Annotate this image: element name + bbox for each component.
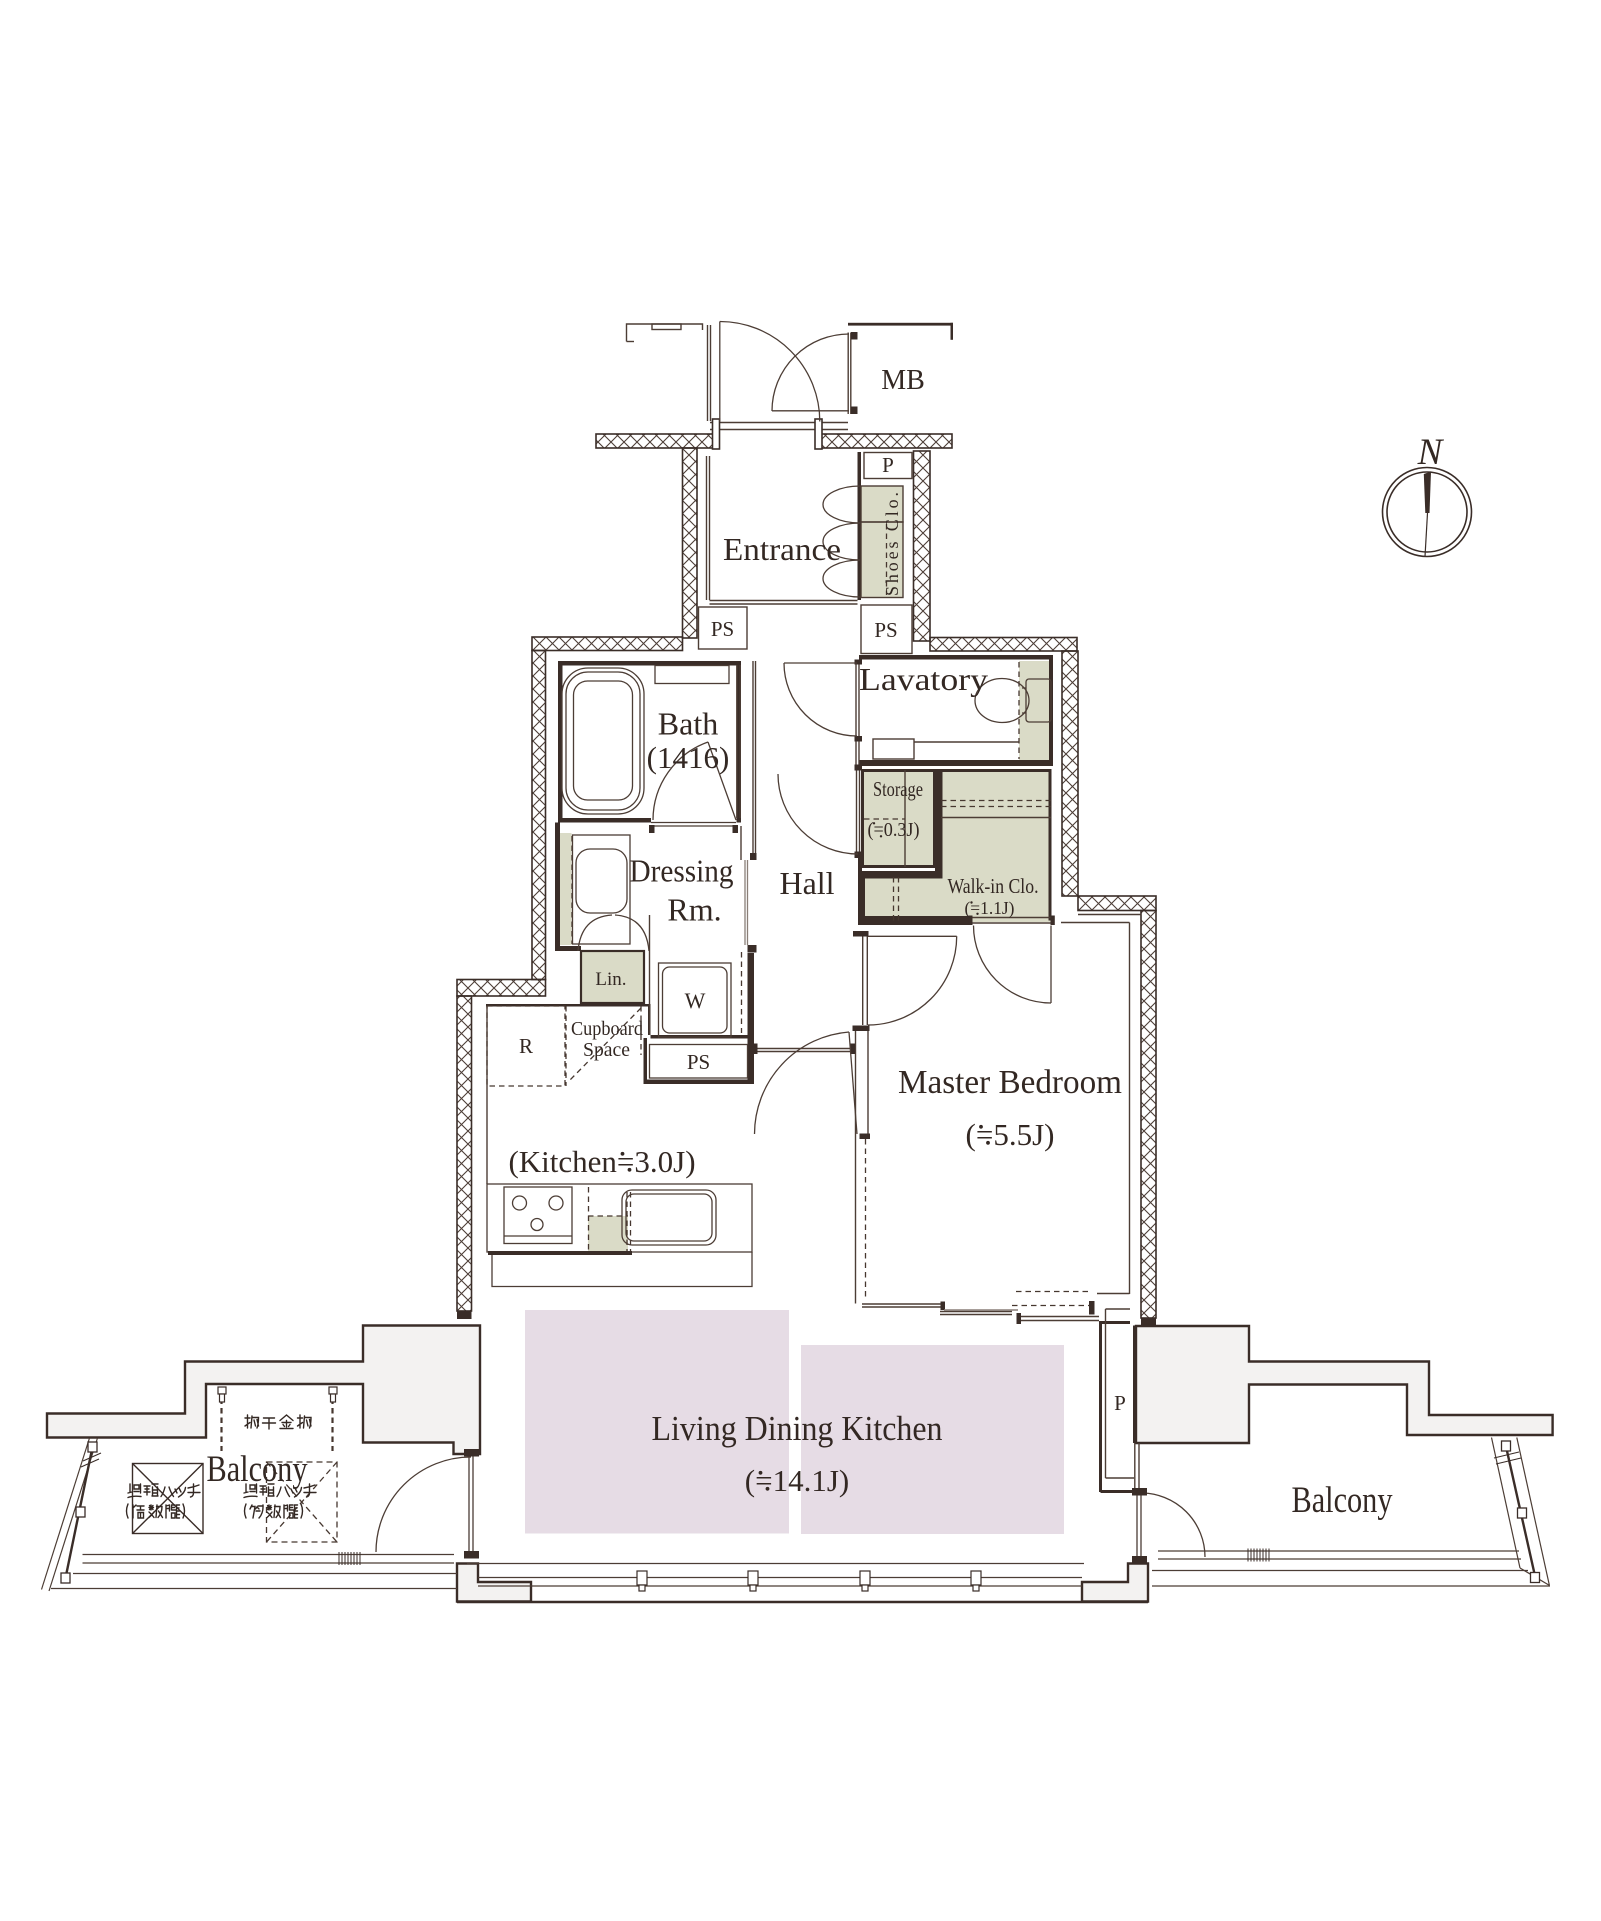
svg-text:P: P — [1114, 1391, 1126, 1415]
svg-text:(Kitchen=3.0J): (Kitchen=3.0J) — [508, 1144, 695, 1179]
svg-text:R: R — [519, 1034, 533, 1058]
svg-text:Balcony: Balcony — [207, 1449, 308, 1490]
svg-text:Cupboard: Cupboard — [571, 1018, 643, 1040]
svg-text:PS: PS — [687, 1050, 710, 1074]
svg-text:Balcony: Balcony — [1292, 1480, 1393, 1521]
svg-text:Living Dining Kitchen: Living Dining Kitchen — [652, 1409, 943, 1448]
svg-text:Shoes Clo.: Shoes Clo. — [882, 492, 902, 596]
svg-text:Storage: Storage — [873, 777, 923, 801]
svg-text:Rm.: Rm. — [667, 892, 721, 928]
svg-text:PS: PS — [874, 618, 897, 642]
svg-text:Space: Space — [583, 1039, 630, 1061]
svg-text:Lin.: Lin. — [595, 969, 626, 990]
svg-text:N: N — [1417, 432, 1445, 473]
svg-text:Walk-in Clo.: Walk-in Clo. — [948, 874, 1039, 898]
svg-text:(=1.1J): (=1.1J) — [965, 898, 1015, 919]
svg-text:PS: PS — [711, 617, 734, 641]
svg-text:P: P — [882, 453, 894, 477]
svg-text:(=0.3J): (=0.3J) — [868, 819, 920, 841]
svg-text:Lavatory: Lavatory — [859, 661, 988, 697]
svg-text:Master Bedroom: Master Bedroom — [898, 1064, 1122, 1101]
svg-text:(=14.1J): (=14.1J) — [745, 1463, 849, 1498]
svg-text:(=5.5J): (=5.5J) — [966, 1117, 1055, 1152]
svg-text:W: W — [685, 988, 706, 1013]
svg-text:(1416): (1416) — [647, 740, 730, 775]
svg-text:Bath: Bath — [658, 706, 718, 742]
svg-text:Dressing: Dressing — [630, 853, 734, 889]
svg-text:Hall: Hall — [779, 865, 834, 901]
svg-text:Entrance: Entrance — [723, 531, 841, 567]
svg-text:MB: MB — [881, 365, 925, 396]
